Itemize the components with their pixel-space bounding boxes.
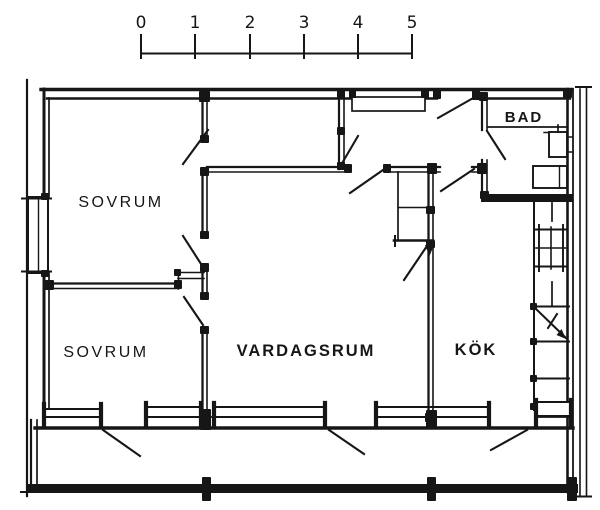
chimney-grid (535, 225, 567, 271)
door-swings (103, 97, 527, 456)
bottom-windows (44, 402, 572, 417)
scale-label-2: 2 (245, 13, 256, 33)
wardrobe (352, 97, 425, 111)
floor-plan-drawing: 0 1 2 3 4 5 (0, 0, 600, 510)
scale-bar: 0 1 2 3 4 5 (136, 13, 418, 58)
scale-label-3: 3 (299, 13, 310, 33)
scale-label-0: 0 (136, 13, 147, 33)
scale-label-5: 5 (407, 13, 418, 33)
right-eave-caps (576, 87, 591, 497)
exterior-walls (41, 89, 573, 492)
room-label-kitchen: KÖK (455, 340, 498, 359)
room-label-bedroom-bottom: SOVRUM (63, 344, 148, 361)
scale-bar-ticks (141, 35, 412, 58)
room-label-bedroom-top: SOVRUM (78, 194, 163, 211)
stair-treads (534, 307, 569, 379)
bottom-wall (35, 400, 573, 430)
room-labels: SOVRUM SOVRUM VARDAGSRUM KÖK BAD (63, 109, 543, 361)
scale-label-4: 4 (353, 13, 364, 33)
veranda-front-wall (27, 484, 578, 493)
bathroom (481, 125, 573, 202)
sink-fixture (533, 166, 567, 188)
room-label-living-room: VARDAGSRUM (237, 342, 376, 360)
bathroom-south-wall (481, 194, 573, 202)
scale-label-1: 1 (190, 13, 201, 33)
right-eave-lines (580, 87, 587, 496)
room-label-bathroom: BAD (505, 109, 544, 126)
interior-walls (48, 97, 487, 419)
